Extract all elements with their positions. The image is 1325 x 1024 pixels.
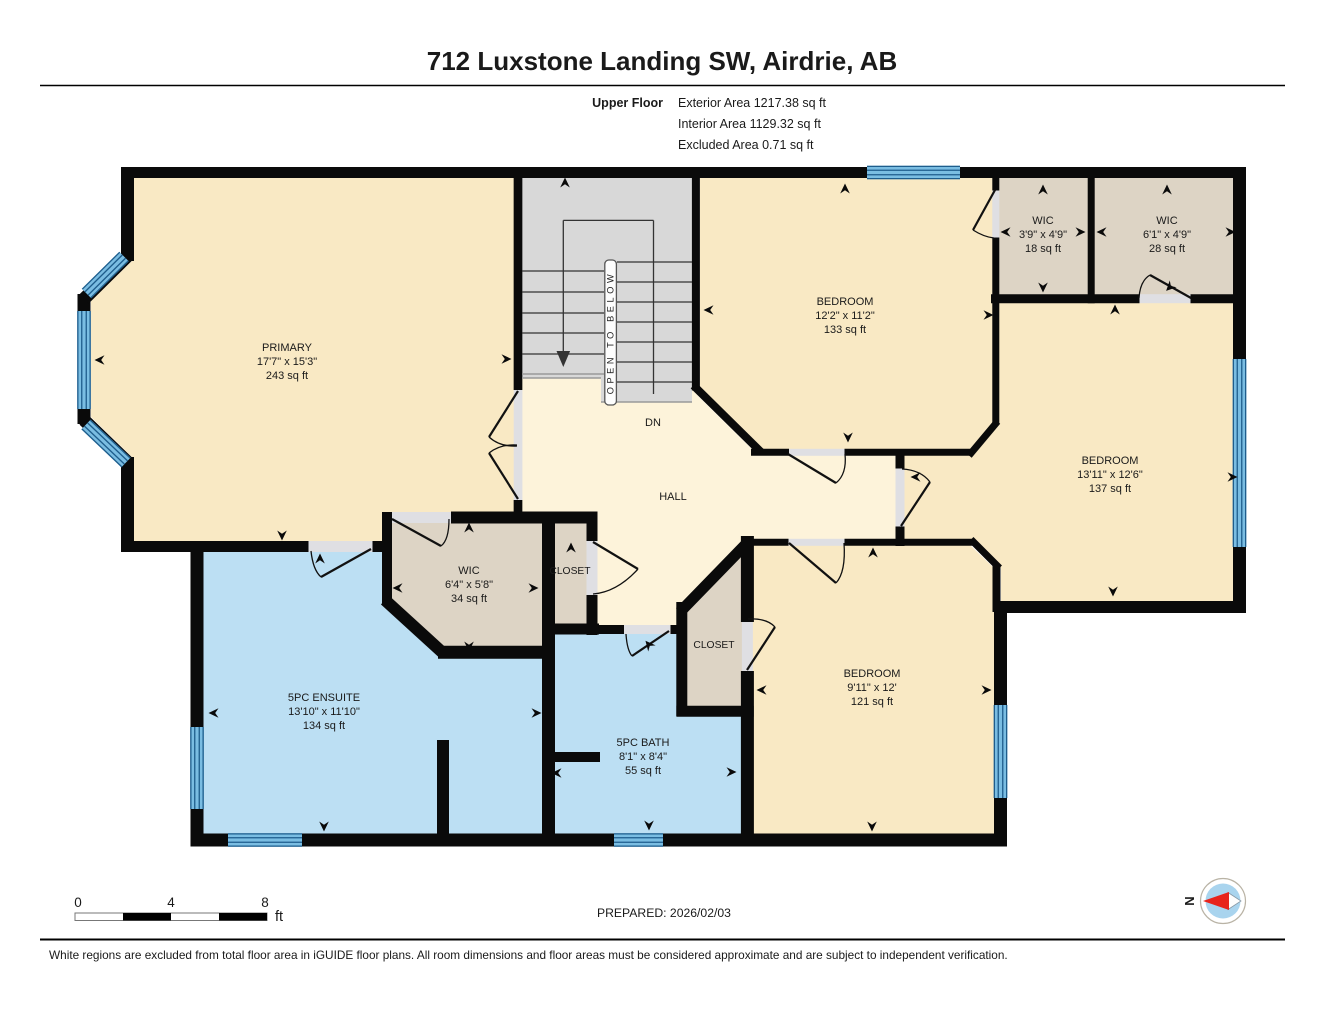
svg-text:121 sq ft: 121 sq ft (851, 696, 893, 708)
svg-text:17'7" x 15'3": 17'7" x 15'3" (257, 356, 317, 368)
svg-text:3'9" x 4'9": 3'9" x 4'9" (1019, 229, 1067, 241)
svg-text:133 sq ft: 133 sq ft (824, 324, 866, 336)
svg-text:28 sq ft: 28 sq ft (1149, 243, 1185, 255)
svg-text:55 sq ft: 55 sq ft (625, 765, 661, 777)
svg-text:Excluded Area 0.71 sq ft: Excluded Area 0.71 sq ft (678, 138, 814, 152)
svg-text:8: 8 (261, 895, 269, 910)
svg-text:8'1" x 8'4": 8'1" x 8'4" (619, 751, 667, 763)
svg-text:White regions are excluded fro: White regions are excluded from total fl… (49, 948, 1008, 962)
svg-text:N: N (1182, 896, 1197, 905)
svg-text:OPEN TO BELOW: OPEN TO BELOW (606, 271, 616, 395)
svg-text:12'2" x 11'2": 12'2" x 11'2" (815, 310, 875, 322)
svg-text:WIC: WIC (1156, 215, 1177, 227)
svg-text:ft: ft (275, 909, 283, 925)
svg-text:BEDROOM: BEDROOM (1082, 455, 1139, 467)
svg-text:137 sq ft: 137 sq ft (1089, 483, 1131, 495)
svg-text:9'11" x 12': 9'11" x 12' (847, 682, 897, 694)
svg-text:5PC ENSUITE: 5PC ENSUITE (288, 692, 360, 704)
svg-text:Interior Area 1129.32 sq ft: Interior Area 1129.32 sq ft (678, 117, 821, 131)
svg-text:18 sq ft: 18 sq ft (1025, 243, 1061, 255)
svg-text:13'10" x 11'10": 13'10" x 11'10" (288, 706, 360, 718)
svg-text:CLOSET: CLOSET (693, 640, 735, 651)
svg-text:BEDROOM: BEDROOM (844, 668, 901, 680)
svg-text:CLOSET: CLOSET (549, 566, 591, 577)
svg-text:6'1" x 4'9": 6'1" x 4'9" (1143, 229, 1191, 241)
svg-text:0: 0 (74, 895, 82, 910)
svg-text:DN: DN (645, 417, 661, 429)
svg-text:PRIMARY: PRIMARY (262, 342, 313, 354)
svg-text:BEDROOM: BEDROOM (817, 296, 874, 308)
svg-text:WIC: WIC (458, 565, 479, 577)
svg-text:5PC BATH: 5PC BATH (617, 737, 670, 749)
svg-text:134 sq ft: 134 sq ft (303, 720, 345, 732)
svg-text:Upper Floor: Upper Floor (592, 96, 663, 110)
svg-text:WIC: WIC (1032, 215, 1053, 227)
svg-text:712 Luxstone Landing SW, Airdr: 712 Luxstone Landing SW, Airdrie, AB (427, 46, 897, 76)
svg-text:243 sq ft: 243 sq ft (266, 370, 308, 382)
svg-text:13'11" x 12'6": 13'11" x 12'6" (1077, 469, 1143, 481)
svg-text:HALL: HALL (659, 491, 687, 503)
svg-text:Exterior Area 1217.38 sq ft: Exterior Area 1217.38 sq ft (678, 96, 827, 110)
svg-text:6'4" x 5'8": 6'4" x 5'8" (445, 579, 493, 591)
svg-text:4: 4 (167, 895, 175, 910)
svg-text:34 sq ft: 34 sq ft (451, 593, 487, 605)
svg-text:PREPARED: 2026/02/03: PREPARED: 2026/02/03 (597, 906, 731, 920)
